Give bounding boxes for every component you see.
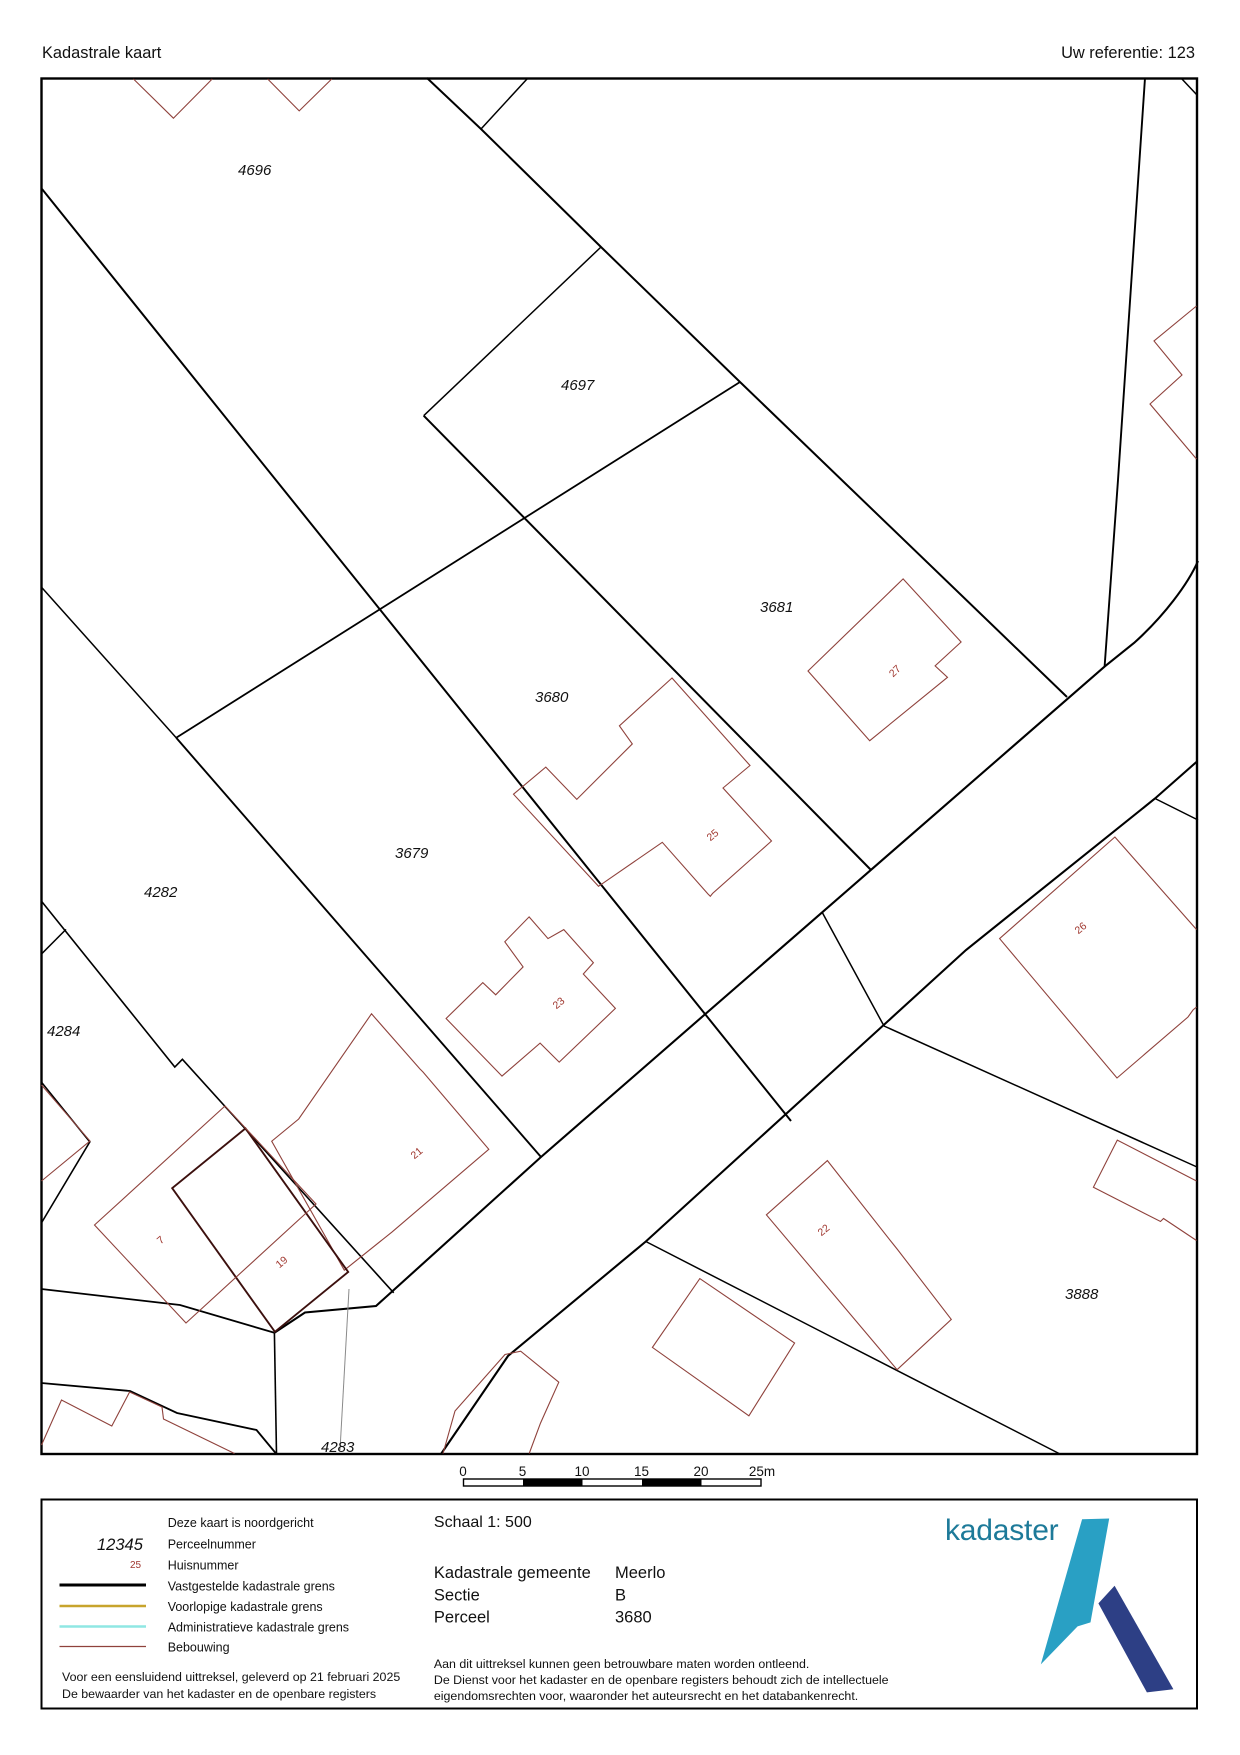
svg-text:4282: 4282 [144, 884, 178, 901]
svg-text:kadaster: kadaster [945, 1514, 1059, 1547]
svg-text:25m: 25m [749, 1464, 775, 1479]
svg-text:15: 15 [634, 1464, 649, 1479]
svg-text:Perceel: Perceel [434, 1609, 490, 1627]
svg-text:Meerlo: Meerlo [615, 1564, 665, 1582]
svg-text:4697: 4697 [561, 377, 595, 394]
svg-text:25: 25 [130, 1560, 142, 1571]
svg-text:Perceelnummer: Perceelnummer [168, 1538, 256, 1552]
svg-text:25: 25 [705, 827, 722, 844]
svg-text:3679: 3679 [395, 845, 429, 862]
svg-text:4284: 4284 [47, 1023, 80, 1040]
svg-text:eigendomsrechten voor, waarond: eigendomsrechten voor, waaronder het aut… [434, 1689, 858, 1703]
svg-text:De bewaarder van het kadaster: De bewaarder van het kadaster en de open… [62, 1687, 376, 1701]
svg-text:21: 21 [409, 1145, 426, 1162]
svg-text:3681: 3681 [760, 599, 793, 616]
svg-text:3680: 3680 [615, 1609, 652, 1627]
svg-text:Huisnummer: Huisnummer [168, 1559, 239, 1573]
svg-text:3888: 3888 [1065, 1286, 1099, 1303]
svg-text:Voor een eensluidend uittrekse: Voor een eensluidend uittreksel, gelever… [62, 1670, 400, 1684]
svg-text:22: 22 [816, 1222, 833, 1239]
svg-text:Aan dit uittreksel kunnen geen: Aan dit uittreksel kunnen geen betrouwba… [434, 1657, 809, 1671]
svg-text:Sectie: Sectie [434, 1587, 480, 1605]
svg-text:Schaal 1: 500: Schaal 1: 500 [434, 1514, 532, 1531]
svg-text:23: 23 [551, 995, 568, 1012]
svg-text:B: B [615, 1587, 626, 1605]
svg-text:Kadastrale kaart: Kadastrale kaart [42, 44, 162, 62]
svg-text:0: 0 [459, 1464, 467, 1479]
svg-text:De Dienst voor het kadaster en: De Dienst voor het kadaster en de openba… [434, 1673, 889, 1687]
svg-text:4696: 4696 [238, 162, 272, 179]
svg-text:7: 7 [155, 1234, 167, 1247]
svg-text:12345: 12345 [97, 1536, 144, 1554]
svg-text:27: 27 [887, 663, 904, 680]
svg-text:20: 20 [693, 1464, 708, 1479]
svg-text:Kadastrale gemeente: Kadastrale gemeente [434, 1564, 591, 1582]
svg-text:3680: 3680 [535, 689, 569, 706]
svg-text:Administratieve kadastrale gre: Administratieve kadastrale grens [168, 1621, 349, 1635]
svg-text:5: 5 [519, 1464, 527, 1479]
svg-text:4283: 4283 [321, 1439, 355, 1456]
svg-text:Uw referentie: 123: Uw referentie: 123 [1061, 44, 1195, 62]
svg-text:10: 10 [574, 1464, 589, 1479]
svg-text:Voorlopige kadastrale grens: Voorlopige kadastrale grens [168, 1600, 323, 1614]
svg-text:Vastgestelde kadastrale grens: Vastgestelde kadastrale grens [168, 1580, 335, 1594]
svg-text:26: 26 [1073, 920, 1090, 937]
svg-text:19: 19 [274, 1254, 291, 1271]
svg-text:Bebouwing: Bebouwing [168, 1641, 230, 1655]
svg-text:Deze kaart is noordgericht: Deze kaart is noordgericht [168, 1516, 314, 1530]
